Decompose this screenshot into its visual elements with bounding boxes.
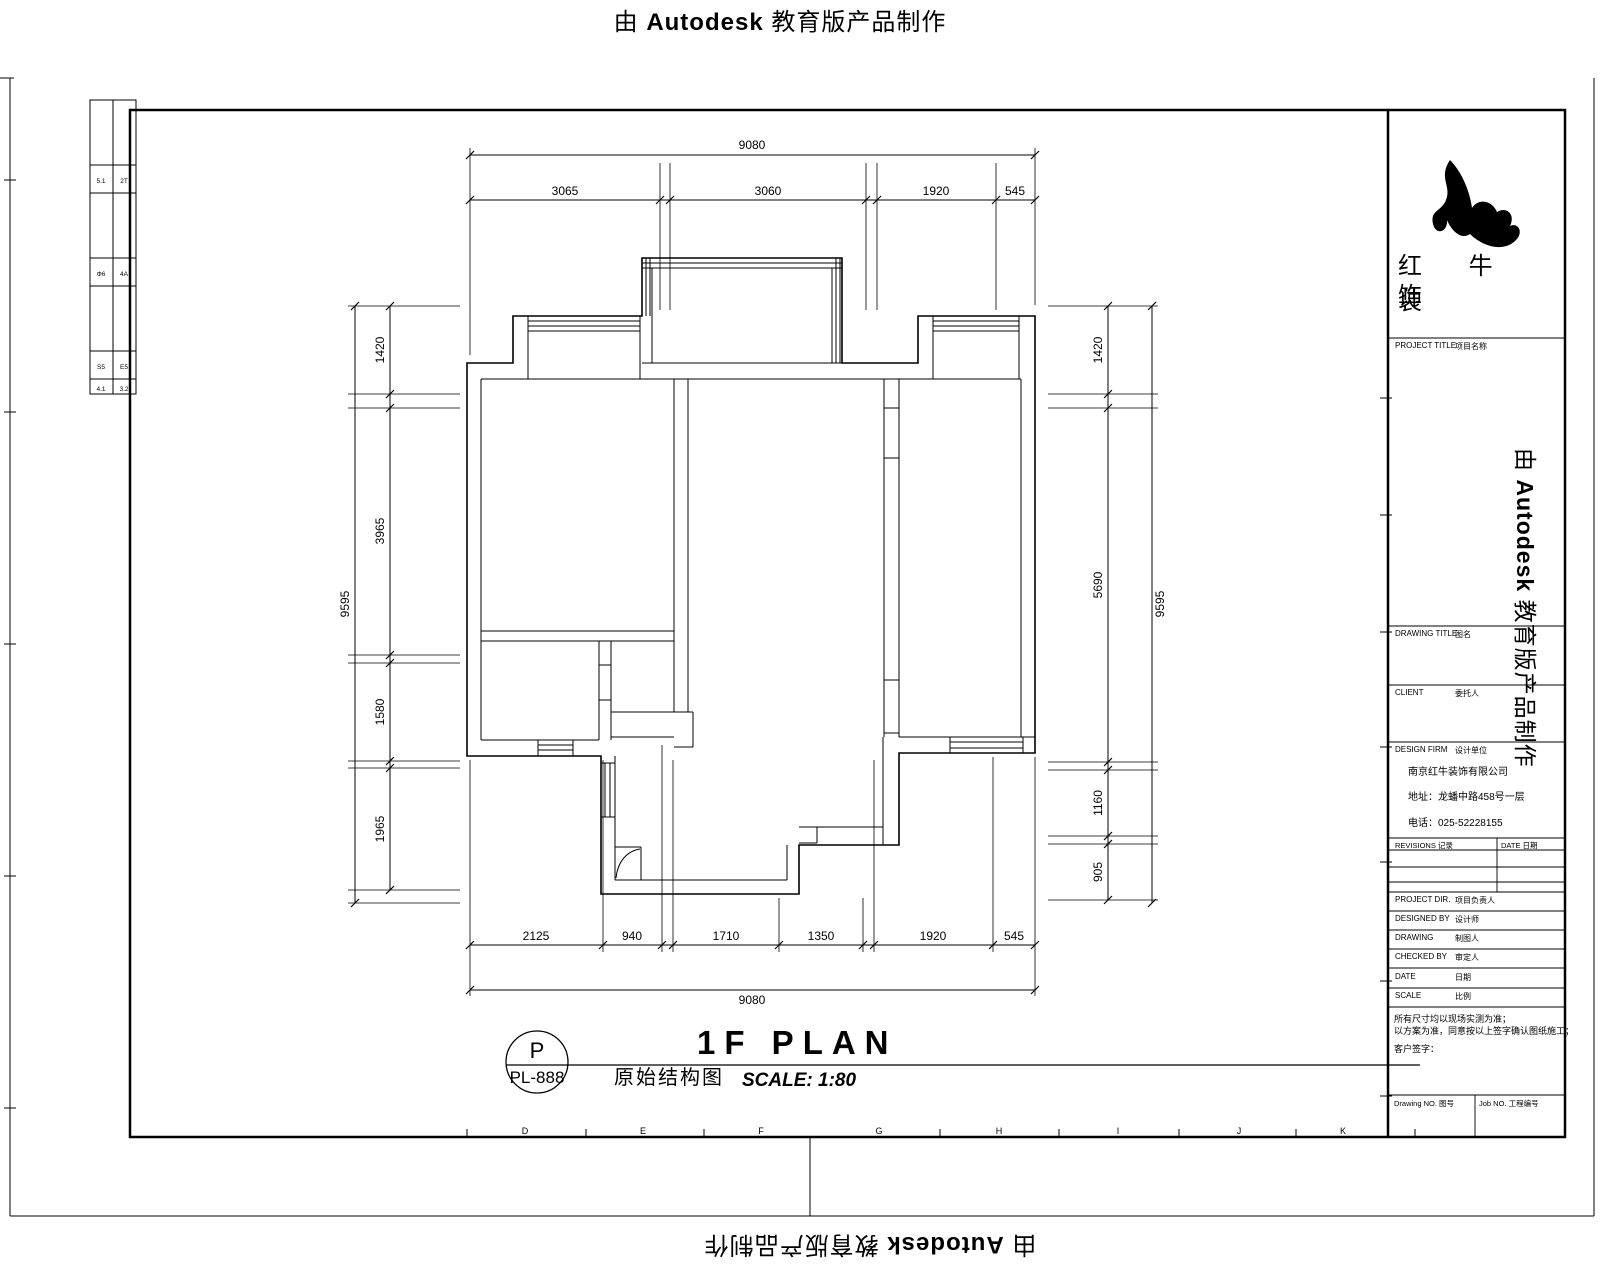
grid-letter: G bbox=[875, 1126, 882, 1136]
drawing-name-en: 1F PLAN bbox=[697, 1024, 898, 1062]
company-name-line2: 饰 bbox=[1398, 276, 1568, 311]
revisions-date-header: DATE 日期 bbox=[1501, 840, 1538, 851]
grid-ticks bbox=[467, 1129, 1415, 1216]
field-project-title: PROJECT TITLE 项目名称 bbox=[1395, 341, 1571, 353]
grid-letter: J bbox=[1237, 1126, 1242, 1136]
firm-address: 地址：龙蟠中路458号一层 bbox=[1408, 788, 1525, 803]
dim-top-seg: 3060 bbox=[755, 184, 782, 198]
dim-top-overall: 9080 bbox=[739, 138, 766, 152]
legend-cell: 2T bbox=[120, 178, 128, 185]
note-line: 以方案为准，同意按以上签字确认图纸施工； bbox=[1394, 1024, 1574, 1037]
title-block-ruler-ticks bbox=[1380, 398, 1392, 1096]
callout-drawing-no: PL-888 bbox=[506, 1068, 568, 1088]
field-designed-by: DESIGNED BY 设计师 bbox=[1395, 914, 1571, 926]
door-swing-arc bbox=[616, 849, 640, 878]
plan-outer-walls bbox=[467, 258, 1035, 894]
revisions-header: REVISIONS 记录 bbox=[1395, 840, 1453, 851]
grid-letter: K bbox=[1340, 1126, 1346, 1136]
dim-bottom-overall: 9080 bbox=[739, 993, 766, 1007]
grid-letter: F bbox=[758, 1126, 764, 1136]
grid-letter: D bbox=[522, 1126, 529, 1136]
dim-bottom-seg: 2125 bbox=[523, 929, 550, 943]
dim-bottom-seg: 1710 bbox=[713, 929, 740, 943]
dim-left-seg: 3965 bbox=[373, 517, 387, 544]
dim-top-seg: 545 bbox=[1005, 184, 1025, 198]
dim-top-seg: 1920 bbox=[923, 184, 950, 198]
plan-inner-walls bbox=[481, 258, 1035, 880]
field-date: DATE 日期 bbox=[1395, 972, 1571, 984]
dim-right-seg: 1160 bbox=[1091, 790, 1105, 816]
drawing-frame bbox=[130, 110, 1565, 1137]
dim-left-overall: 9595 bbox=[338, 590, 352, 617]
dim-right-overall: 9595 bbox=[1153, 590, 1167, 617]
legend-cell: 3.2 bbox=[119, 386, 128, 393]
dimension-lines bbox=[355, 155, 1152, 990]
field-project-dir: PROJECT DIR. 项目负责人 bbox=[1395, 895, 1571, 907]
drawing-scale: SCALE: 1:80 bbox=[742, 1070, 856, 1092]
drawing-no-label: Drawing NO. 图号 bbox=[1394, 1098, 1454, 1109]
dim-bottom-seg: 940 bbox=[622, 929, 642, 943]
grid-letter: E bbox=[640, 1126, 646, 1136]
drawing-name-cn: 原始结构图 bbox=[614, 1061, 724, 1090]
legend-cell: 4A bbox=[120, 271, 129, 278]
dim-bottom-seg: 545 bbox=[1004, 929, 1024, 943]
extension-lines bbox=[348, 148, 1158, 996]
dim-right-seg: 1420 bbox=[1091, 336, 1105, 363]
field-scale: SCALE 比例 bbox=[1395, 991, 1571, 1003]
callout-letter: P bbox=[512, 1038, 562, 1064]
field-drawing-title: DRAWING TITLE 图名 bbox=[1395, 629, 1571, 641]
dim-bottom-seg: 1920 bbox=[920, 929, 947, 943]
job-no-label: Job NO. 工程编号 bbox=[1479, 1098, 1539, 1109]
dim-bottom-seg: 1350 bbox=[808, 929, 835, 943]
note-line: 客户签字： bbox=[1394, 1042, 1439, 1055]
legend-cell: E5 bbox=[120, 364, 128, 371]
dim-left-seg: 1580 bbox=[373, 698, 387, 725]
field-checked-by: CHECKED BY 审定人 bbox=[1395, 952, 1571, 964]
grid-letter: I bbox=[1117, 1126, 1120, 1136]
legend-cell: 5.1 bbox=[96, 178, 105, 185]
dim-top-seg: 3065 bbox=[552, 184, 579, 198]
company-logo-icon bbox=[1432, 160, 1519, 247]
dim-left-seg: 1965 bbox=[373, 815, 387, 842]
legend-cell: Φ6 bbox=[97, 271, 106, 278]
dim-right-seg: 5690 bbox=[1091, 571, 1105, 598]
field-drawn-by: DRAWING 制图人 bbox=[1395, 933, 1571, 945]
legend-cell: S5 bbox=[97, 364, 105, 371]
firm-phone: 电话：025-52228155 bbox=[1408, 814, 1503, 829]
legend-cell: 4.1 bbox=[96, 386, 105, 393]
dim-left-seg: 1420 bbox=[373, 336, 387, 363]
grid-letter: H bbox=[996, 1126, 1003, 1136]
dim-right-seg: 905 bbox=[1091, 862, 1105, 882]
firm-name: 南京红牛装饰有限公司 bbox=[1408, 763, 1508, 778]
field-client: CLIENT 委托人 bbox=[1395, 688, 1571, 700]
field-design-firm: DESIGN FIRM 设计单位 bbox=[1395, 745, 1571, 757]
